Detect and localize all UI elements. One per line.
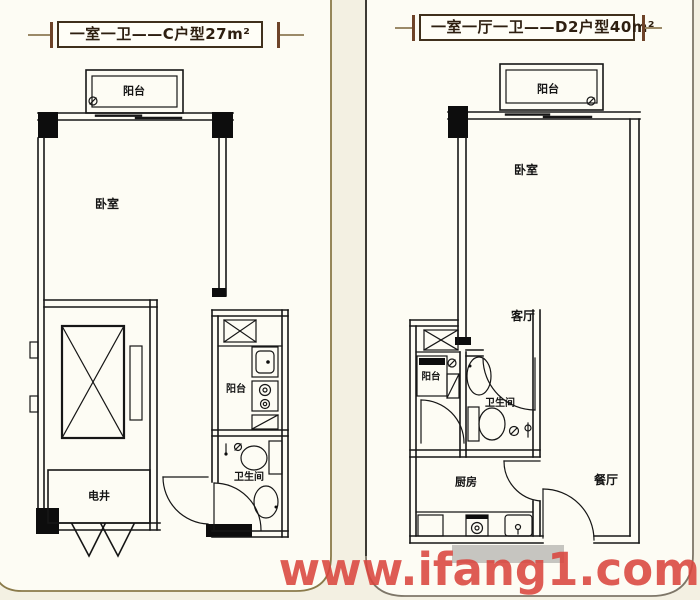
room-label-balcony-top-left: 阳台 — [123, 86, 145, 97]
title-decor-line — [395, 27, 412, 29]
column — [212, 112, 233, 138]
room-label-bathroom-right: 卫生间 — [485, 399, 515, 409]
room-label-living-room: 客厅 — [511, 310, 535, 322]
room-label-utility-shaft: 电井 — [88, 491, 110, 502]
title-decor-bar — [50, 22, 53, 48]
room-label-kitchen: 厨房 — [455, 477, 477, 488]
room-label-dining-room: 餐厅 — [594, 474, 618, 486]
floorplan-drawing — [0, 0, 700, 600]
right-card-frame — [366, 0, 693, 596]
left-plan-title: 一室一卫——C户型27m² — [28, 21, 304, 48]
column — [38, 112, 58, 138]
room-label-bedroom-right: 卧室 — [514, 164, 538, 176]
right-plan-title: 一室一厅一卫——D2户型40m² — [395, 14, 662, 41]
title-decor-line — [28, 34, 50, 36]
watermark-text: www.ifang1.com — [279, 543, 700, 596]
room-label-balcony-top-right: 阳台 — [537, 84, 559, 95]
room-label-bathroom-left: 卫生间 — [234, 473, 264, 483]
title-decor-line — [645, 27, 662, 29]
left-plan-title-text: 一室一卫——C户型27m² — [57, 21, 263, 48]
room-label-balcony-side-right: 阳台 — [421, 372, 440, 382]
title-decor-line — [280, 34, 304, 36]
floorplan-page: 一室一卫——C户型27m² 一室一厅一卫——D2户型40m² 阳台 卧室 阳台 … — [0, 0, 700, 600]
room-label-balcony-side-left: 阳台 — [226, 385, 246, 395]
column — [448, 106, 468, 138]
right-plan-title-text: 一室一厅一卫——D2户型40m² — [419, 14, 635, 41]
title-decor-bar — [412, 15, 415, 41]
room-label-bedroom-left: 卧室 — [95, 198, 119, 210]
